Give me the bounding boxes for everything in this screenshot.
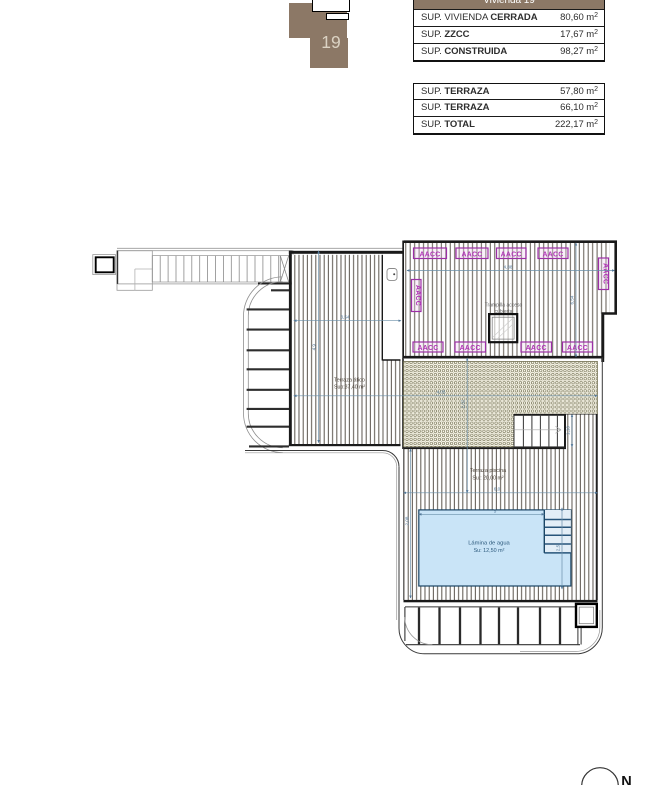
svg-text:cubierta: cubierta	[495, 309, 513, 315]
svg-text:3,54: 3,54	[341, 315, 350, 320]
svg-text:AACC: AACC	[602, 263, 609, 284]
svg-text:Terraza piscina: Terraza piscina	[470, 468, 506, 474]
svg-text:AACC: AACC	[461, 251, 482, 258]
svg-text:4,9: 4,9	[312, 344, 317, 351]
svg-text:Sup:37,40 m²: Sup:37,40 m²	[334, 384, 365, 390]
svg-text:AACC: AACC	[526, 345, 547, 352]
svg-text:AACC: AACC	[501, 251, 522, 258]
svg-text:AACC: AACC	[417, 345, 438, 352]
svg-text:Terraza ático: Terraza ático	[334, 378, 365, 384]
svg-text:4,88: 4,88	[504, 264, 513, 269]
svg-text:6,54: 6,54	[570, 295, 575, 304]
svg-text:2,5: 2,5	[556, 544, 561, 551]
svg-text:1,10: 1,10	[566, 426, 571, 435]
svg-text:Trampilla acceso: Trampilla acceso	[485, 303, 523, 309]
svg-text:Su: 12,50 m²: Su: 12,50 m²	[474, 548, 505, 554]
svg-text:N: N	[621, 774, 631, 785]
svg-text:6,0: 6,0	[494, 487, 501, 492]
svg-text:Su.: 20,00 m²: Su.: 20,00 m²	[472, 476, 503, 482]
svg-text:AACC: AACC	[567, 345, 588, 352]
svg-text:2,02: 2,02	[461, 399, 466, 408]
svg-text:5: 5	[494, 509, 497, 514]
svg-text:AACC: AACC	[414, 285, 421, 306]
svg-text:Lámina de agua: Lámina de agua	[468, 541, 510, 547]
svg-text:AACC: AACC	[419, 251, 440, 258]
svg-text:AACC: AACC	[542, 251, 563, 258]
svg-text:AACC: AACC	[460, 345, 481, 352]
svg-text:2,08: 2,08	[404, 516, 409, 525]
svg-text:4,05: 4,05	[437, 389, 446, 394]
